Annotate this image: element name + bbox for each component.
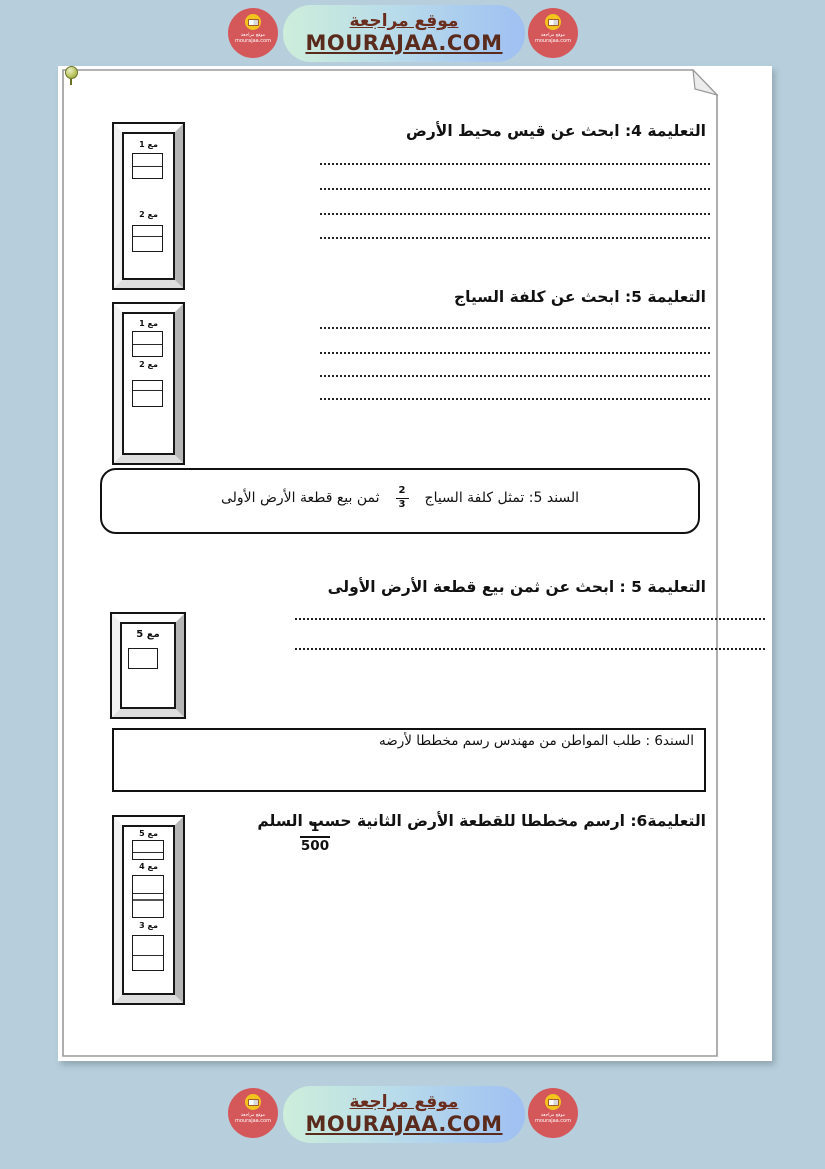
plan-rect xyxy=(128,648,158,669)
answer-line xyxy=(320,213,710,215)
plan-rect xyxy=(132,380,163,407)
banner-title-arabic: موقع مراجعة xyxy=(350,12,459,32)
banner-pill[interactable]: موقع مراجعة MOURAJAA.COM xyxy=(283,5,525,62)
mourajaa-badge[interactable]: موقع مراجعة mourajaa.com xyxy=(228,1088,278,1138)
badge-site: mourajaa.com xyxy=(235,1118,271,1124)
plan-label: مع 2 xyxy=(124,360,173,369)
answer-line xyxy=(320,375,710,377)
book-icon xyxy=(245,1094,261,1110)
mourajaa-badge[interactable]: موقع مراجعة mourajaa.com xyxy=(528,8,578,58)
plan-label: مع 4 xyxy=(124,862,173,871)
answer-line xyxy=(320,237,710,239)
badge-site: mourajaa.com xyxy=(535,1118,571,1124)
answer-line xyxy=(295,618,765,620)
instruction-4-heading: التعليمة 4: ابحث عن قيس محيط الأرض xyxy=(406,122,706,140)
sanad6-text: السند6 : طلب المواطن من مهندس رسم مخططا … xyxy=(379,733,694,749)
answer-line xyxy=(320,352,710,354)
land-plan-frame-1: مع 1 مع 2 xyxy=(112,122,185,290)
mourajaa-badge[interactable]: موقع مراجعة mourajaa.com xyxy=(528,1088,578,1138)
land-plan-frame-4: مع 5 مع 4 مع 3 xyxy=(112,815,185,1005)
sanad5-text-before: السند 5: تمثل كلفة السياج xyxy=(425,490,580,506)
plan-rect xyxy=(132,875,164,918)
plan-label: مع 2 xyxy=(124,210,173,219)
sanad6-box: السند6 : طلب المواطن من مهندس رسم مخططا … xyxy=(112,728,706,792)
answer-line xyxy=(295,648,765,650)
badge-site: mourajaa.com xyxy=(535,38,571,44)
fraction-two-thirds: 2 3 xyxy=(396,486,409,510)
plan-rect xyxy=(132,225,163,252)
book-icon xyxy=(245,14,261,30)
instruction-5-price-heading: التعليمة 5 : ابحث عن ثمن بيع قطعة الأرض … xyxy=(328,578,706,596)
sanad5-box: السند 5: تمثل كلفة السياج 2 3 ثمن بيع قط… xyxy=(100,468,700,534)
plan-rect xyxy=(132,935,164,971)
answer-line xyxy=(320,163,710,165)
scale-fraction: 1 500 xyxy=(300,821,330,853)
instruction-5-cost-heading: التعليمة 5: ابحث عن كلفة السياج xyxy=(454,288,706,306)
plan-rect xyxy=(132,840,164,860)
screenshot-root: موقع مراجعة mourajaa.com موقع مراجعة MOU… xyxy=(0,0,825,1169)
land-plan-frame-2: مع 1 مع 2 xyxy=(112,302,185,465)
plan-label: مع 5 xyxy=(122,629,174,640)
plan-label: مع 3 xyxy=(124,921,173,930)
plan-rect xyxy=(132,331,163,357)
banner-pill[interactable]: موقع مراجعة MOURAJAA.COM xyxy=(283,1086,525,1143)
badge-site: mourajaa.com xyxy=(235,38,271,44)
land-plan-frame-3: مع 5 xyxy=(110,612,186,719)
plan-label: مع 1 xyxy=(124,319,173,328)
plan-rect xyxy=(132,153,163,179)
mourajaa-badge[interactable]: موقع مراجعة mourajaa.com xyxy=(228,8,278,58)
answer-line xyxy=(320,188,710,190)
answer-line xyxy=(320,398,710,400)
book-icon xyxy=(545,1094,561,1110)
page-border: التعليمة 4: ابحث عن قيس محيط الأرض التعل… xyxy=(62,69,718,1057)
banner-site-link[interactable]: MOURAJAA.COM xyxy=(305,1113,502,1136)
plan-label: مع 5 xyxy=(124,829,173,838)
pushpin-icon xyxy=(65,66,77,84)
banner-site-link[interactable]: MOURAJAA.COM xyxy=(305,32,502,55)
book-icon xyxy=(545,14,561,30)
worksheet-page: التعليمة 4: ابحث عن قيس محيط الأرض التعل… xyxy=(58,66,772,1061)
banner-title-arabic: موقع مراجعة xyxy=(350,1093,459,1113)
sanad5-text-after: ثمن بيع قطعة الأرض الأولى xyxy=(221,490,380,506)
answer-line xyxy=(320,327,710,329)
plan-label: مع 1 xyxy=(124,140,173,149)
